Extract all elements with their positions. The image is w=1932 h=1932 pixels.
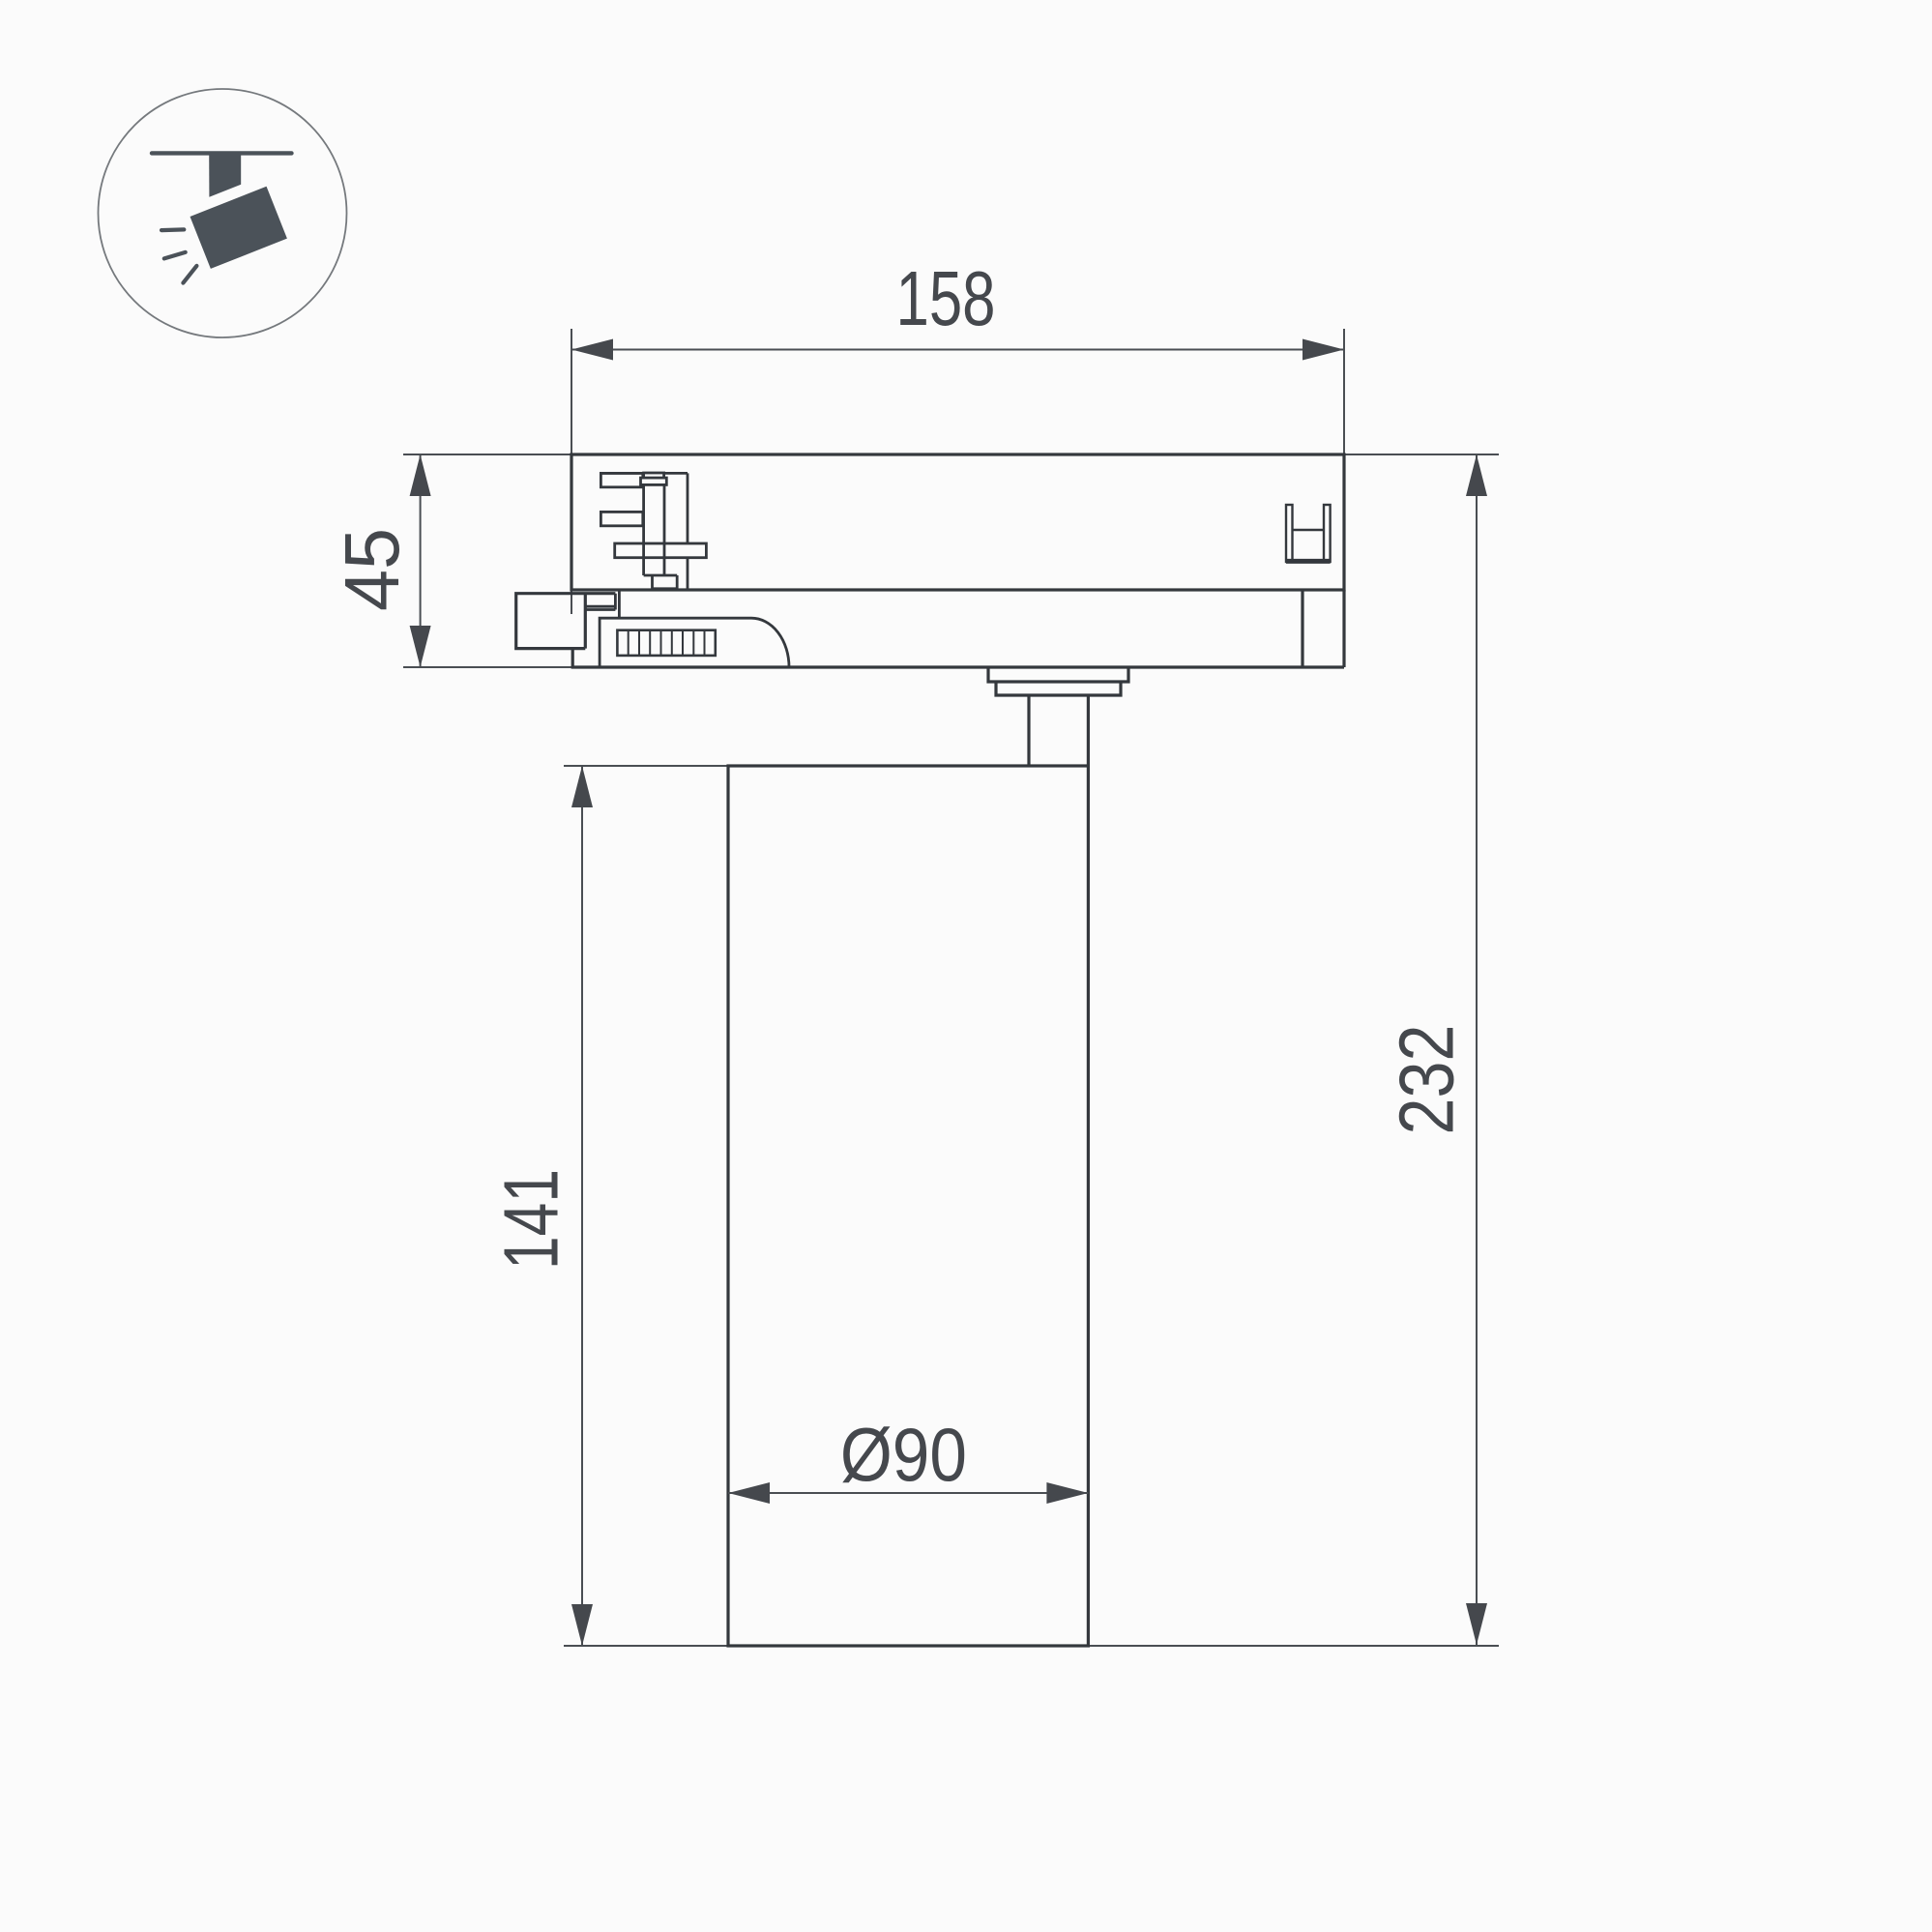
svg-text:45: 45: [329, 528, 415, 611]
svg-text:141: 141: [487, 1169, 573, 1270]
svg-text:Ø90: Ø90: [840, 1412, 967, 1497]
svg-text:158: 158: [896, 255, 996, 341]
svg-text:232: 232: [1384, 1025, 1470, 1135]
